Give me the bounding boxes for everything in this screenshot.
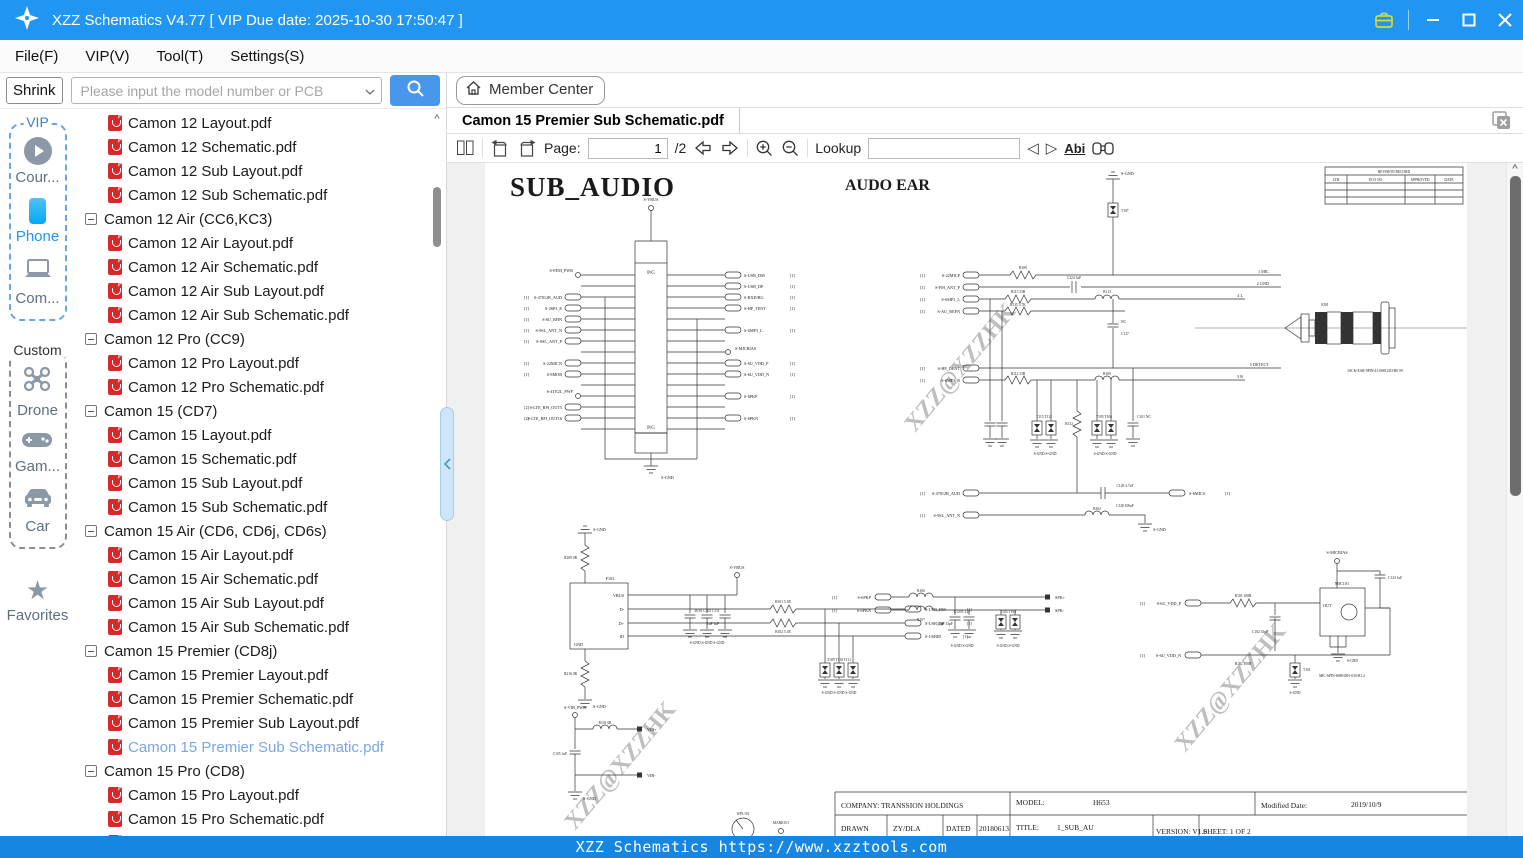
svg-text:1_SUB_AU: 1_SUB_AU bbox=[1057, 823, 1094, 832]
document-tab-bar: Camon 15 Premier Sub Schematic.pdf bbox=[447, 108, 1523, 134]
binoculars-icon[interactable] bbox=[1092, 141, 1114, 156]
svg-text:1uF 1uF: 1uF 1uF bbox=[707, 622, 719, 626]
svg-text:[1]: [1] bbox=[790, 328, 795, 333]
svg-text:S-6MICS: S-6MICS bbox=[1189, 491, 1206, 496]
svg-text:C129 4.7uF: C129 4.7uF bbox=[1117, 484, 1134, 488]
svg-text:S-9SL_ANT_N: S-9SL_ANT_N bbox=[535, 328, 562, 333]
category-sidebar: VIP Cour... Phone bbox=[0, 109, 75, 836]
search-icon bbox=[405, 78, 425, 103]
tree-item[interactable]: Camon 12 Schematic.pdf bbox=[75, 135, 446, 159]
section-title: AUDO EAR bbox=[845, 177, 930, 194]
find-next-icon[interactable] bbox=[1046, 139, 1058, 157]
svg-text:S-6MP3_R: S-6MP3_R bbox=[941, 378, 960, 383]
collapse-icon[interactable] bbox=[85, 525, 97, 537]
svg-text:[1]: [1] bbox=[920, 513, 925, 518]
svg-text:S-6U_RHN: S-6U_RHN bbox=[542, 317, 562, 322]
model-search-wrap bbox=[71, 77, 382, 104]
svg-text:ZY/DLA: ZY/DLA bbox=[893, 824, 921, 833]
pdf-file-icon bbox=[108, 667, 122, 683]
tree-item-label: Camon 15 Air Sub Schematic.pdf bbox=[128, 619, 349, 636]
collapse-icon[interactable] bbox=[85, 405, 97, 417]
tree-item[interactable]: Camon 15 Premier (CD8j) bbox=[75, 639, 446, 663]
svg-text:[1]: [1] bbox=[920, 309, 925, 314]
tree-item[interactable]: Camon 15 Air Sub Layout.pdf bbox=[75, 591, 446, 615]
pdf-file-icon bbox=[108, 139, 122, 155]
svg-text:[1]: [1] bbox=[790, 394, 795, 399]
tree-item[interactable]: Camon 15 Air Schematic.pdf bbox=[75, 567, 446, 591]
tree-item-label: Camon 15 Sub Schematic.pdf bbox=[128, 499, 327, 516]
svg-text:C105 1uF: C105 1uF bbox=[553, 752, 567, 756]
app-window: XZZ Schematics V4.77 [ VIP Due date: 202… bbox=[0, 0, 1523, 858]
tree-item-label: Camon 12 Air Sub Layout.pdf bbox=[128, 283, 324, 300]
svg-text:S-GND: S-GND bbox=[1290, 691, 1301, 695]
tree-item-label: Camon 12 Sub Schematic.pdf bbox=[128, 187, 327, 204]
svg-text:[2]: [2] bbox=[524, 416, 529, 421]
svg-text:R115 5.7K: R115 5.7K bbox=[1010, 303, 1026, 307]
svg-text:5 DETECT: 5 DETECT bbox=[1250, 362, 1270, 367]
pdf-file-icon bbox=[108, 115, 122, 131]
svg-text:R108: R108 bbox=[1019, 266, 1027, 270]
svg-text:C120 C121: C120 C121 bbox=[954, 610, 971, 614]
svg-text:S-6PKP: S-6PKP bbox=[744, 394, 758, 399]
phone-icon bbox=[29, 198, 46, 224]
status-bar: XZZ Schematics https://www.xzztools.com bbox=[0, 836, 1523, 858]
tree-item[interactable]: Camon 15 Premier Sub Schematic.pdf bbox=[75, 735, 446, 759]
menu-bar: File(F) VIP(V) Tool(T) Settings(S) bbox=[0, 40, 1523, 73]
next-page-icon[interactable] bbox=[720, 139, 740, 157]
pdf-file-icon bbox=[108, 187, 122, 203]
tree-item-label: Camon 15 Schematic.pdf bbox=[128, 451, 296, 468]
tree-item-label: Camon 15 Air Layout.pdf bbox=[128, 547, 293, 564]
svg-text:20180613: 20180613 bbox=[979, 824, 1009, 833]
svg-text:VIB-: VIB- bbox=[647, 773, 656, 778]
svg-text:C127: C127 bbox=[1121, 332, 1129, 336]
gamepad-icon bbox=[21, 431, 53, 454]
svg-text:COMPANY: TRANSSION HOLDINGS: COMPANY: TRANSSION HOLDINGS bbox=[841, 801, 963, 810]
page-total: /2 bbox=[675, 140, 687, 156]
tree-item-label: Camon 12 Pro Layout.pdf bbox=[128, 355, 299, 372]
svg-text:R112 33R: R112 33R bbox=[1011, 372, 1026, 376]
tree-item-label: Camon 15 Premier Layout.pdf bbox=[128, 667, 328, 684]
rotate-left-icon[interactable] bbox=[490, 139, 510, 158]
svg-text:S-GND: S-GND bbox=[593, 527, 606, 532]
tree-item[interactable]: Camon 12 Pro Layout.pdf bbox=[75, 351, 446, 375]
tree-item-label: Camon 12 Air Schematic.pdf bbox=[128, 259, 318, 276]
tree-item-label: Camon 12 Pro (CC9) bbox=[104, 331, 245, 348]
tree-item-label: Camon 15 Pro Schematic.pdf bbox=[128, 811, 324, 828]
svg-text:VIB+: VIB+ bbox=[647, 727, 657, 732]
scroll-up-icon[interactable] bbox=[1507, 163, 1523, 175]
pdf-file-icon bbox=[108, 451, 122, 467]
svg-text:[1]: [1] bbox=[1225, 491, 1230, 496]
pdf-file-icon bbox=[108, 259, 122, 275]
sidebar-item-drone[interactable]: Drone bbox=[17, 365, 58, 419]
revision-table: REVISION RECORD LTR ECO NO. APPROVED DAT… bbox=[1325, 167, 1463, 204]
svg-text:MODEL:: MODEL: bbox=[1016, 798, 1045, 807]
svg-text:[1]: [1] bbox=[524, 372, 529, 377]
svg-text:S-GND S-GND: S-GND S-GND bbox=[1034, 452, 1057, 456]
svg-text:NC: NC bbox=[1121, 320, 1127, 324]
svg-text:C124 1uF: C124 1uF bbox=[1067, 276, 1081, 280]
svg-text:R209 0R: R209 0R bbox=[564, 556, 577, 560]
sidebar-item-car[interactable]: Car bbox=[23, 487, 53, 535]
sidebar-item-favorites[interactable]: Favorites bbox=[7, 577, 69, 624]
custom-group-title: Custom bbox=[10, 342, 64, 358]
svg-text:LTR: LTR bbox=[1333, 178, 1340, 182]
svg-text:S-GND: S-GND bbox=[1153, 527, 1166, 532]
svg-text:S-VBUS: S-VBUS bbox=[730, 565, 746, 570]
svg-text:[2]: [2] bbox=[524, 405, 529, 410]
svg-text:TITLE:: TITLE: bbox=[1016, 823, 1039, 832]
svg-text:S-6U_VDD_N: S-6U_VDD_N bbox=[1156, 653, 1181, 658]
svg-text:R109: R109 bbox=[1103, 372, 1111, 376]
usb-circuit: S-GND R209 0R F102 VBUS D- D+ ID GND bbox=[564, 526, 972, 709]
lookup-label: Lookup bbox=[815, 140, 861, 156]
match-case-toggle[interactable]: Abi bbox=[1064, 141, 1085, 156]
tree-scrollbar-thumb[interactable] bbox=[433, 187, 441, 247]
svg-text:B113: B113 bbox=[1103, 290, 1111, 294]
tree-item[interactable]: Camon 12 Air (CC6,KC3) bbox=[75, 207, 446, 231]
menu-vip[interactable]: VIP(V) bbox=[85, 48, 129, 65]
sidebar-item-phone[interactable]: Phone bbox=[16, 198, 59, 245]
svg-text:S-GND S-GND S-GND: S-GND S-GND S-GND bbox=[822, 691, 857, 695]
pdf-file-icon bbox=[108, 547, 122, 563]
svg-text:R181 100R: R181 100R bbox=[1235, 594, 1252, 598]
pdf-scrollbar[interactable] bbox=[1506, 163, 1523, 836]
tree-item[interactable]: Camon 12 Layout.pdf bbox=[75, 111, 446, 135]
tree-item[interactable]: Camon 12 Air Schematic.pdf bbox=[75, 255, 446, 279]
svg-text:T103 T104: T103 T104 bbox=[1000, 610, 1016, 614]
svg-text:P/G: P/G bbox=[647, 271, 655, 276]
viewer-pane: Member Center Camon 15 Premier Sub Schem… bbox=[447, 73, 1523, 836]
file-tree: Camon 12 Layout.pdf Camon 12 Schematic.p… bbox=[75, 109, 446, 836]
svg-text:C101 NC: C101 NC bbox=[1137, 415, 1151, 419]
vip-group-title: VIP bbox=[23, 114, 52, 130]
svg-text:S-47812B_AUD: S-47812B_AUD bbox=[534, 295, 562, 300]
tree-item-label: Camon 12 Air (CC6,KC3) bbox=[104, 211, 272, 228]
svg-text:S-FEM_PWR: S-FEM_PWR bbox=[549, 268, 573, 273]
svg-text:[1]: [1] bbox=[920, 285, 925, 290]
svg-text:S-9SL_ANT_N: S-9SL_ANT_N bbox=[933, 513, 960, 518]
close-all-tabs-icon[interactable] bbox=[1491, 111, 1511, 136]
two-page-view-icon[interactable] bbox=[456, 139, 475, 157]
svg-text:[1]: [1] bbox=[832, 608, 837, 613]
svg-text:DATED: DATED bbox=[946, 824, 971, 833]
search-button[interactable] bbox=[390, 75, 440, 106]
speaker-circuit: S-6PKP S-6PKN [1] [1] R106 R107 bbox=[832, 589, 1066, 648]
svg-text:[1]: [1] bbox=[524, 361, 529, 366]
chevron-down-icon[interactable] bbox=[364, 85, 376, 103]
svg-text:R107: R107 bbox=[917, 618, 925, 622]
svg-text:S-26P3_E: S-26P3_E bbox=[545, 306, 562, 311]
search-bar: Shrink bbox=[0, 73, 446, 109]
svg-text:[1]: [1] bbox=[1140, 601, 1145, 606]
shrink-button[interactable]: Shrink bbox=[6, 77, 63, 104]
svg-text:R101 5.1R: R101 5.1R bbox=[775, 600, 791, 604]
tree-item[interactable]: Camon 12 Pro (CC9) bbox=[75, 327, 446, 351]
menu-file[interactable]: File(F) bbox=[15, 48, 58, 65]
svg-text:[1]: [1] bbox=[524, 328, 529, 333]
find-prev-icon[interactable] bbox=[1027, 139, 1039, 157]
svg-text:D101 C103 C111: D101 C103 C111 bbox=[694, 609, 719, 613]
svg-text:APPROVED: APPROVED bbox=[1411, 178, 1430, 182]
svg-text:[1]: [1] bbox=[967, 621, 972, 626]
svg-text:H653: H653 bbox=[1093, 798, 1110, 807]
tree-item-label: Camon 12 Sub Layout.pdf bbox=[128, 163, 302, 180]
svg-text:R102 5.1R: R102 5.1R bbox=[775, 630, 791, 634]
rotate-right-icon[interactable] bbox=[517, 139, 537, 158]
svg-text:R113 33R: R113 33R bbox=[1011, 290, 1026, 294]
svg-text:[1]: [1] bbox=[524, 306, 529, 311]
svg-text:R216 0R: R216 0R bbox=[564, 672, 577, 676]
model-search-input[interactable] bbox=[71, 77, 382, 104]
svg-text:[1]: [1] bbox=[790, 273, 795, 278]
tree-item[interactable]: Camon 15 Premier Sub Layout.pdf bbox=[75, 711, 446, 735]
laptop-icon bbox=[23, 257, 53, 286]
vip-group: VIP Cour... Phone bbox=[9, 123, 67, 321]
svg-text:S-8MOB: S-8MOB bbox=[547, 372, 563, 377]
zoom-out-icon[interactable] bbox=[781, 139, 800, 158]
tree-item[interactable]: Camon 15 Sub Schematic.pdf bbox=[75, 495, 446, 519]
lookup-input[interactable] bbox=[868, 138, 1020, 159]
titlebar-separator bbox=[1408, 10, 1409, 30]
tree-item[interactable]: Camon 15 Air Sub Schematic.pdf bbox=[75, 615, 446, 639]
svg-text:WPL101: WPL101 bbox=[737, 812, 750, 816]
pdf-scrollbar-thumb[interactable] bbox=[1510, 176, 1521, 496]
collapse-icon[interactable] bbox=[85, 213, 97, 225]
pdf-file-icon bbox=[108, 283, 122, 299]
svg-text:4 L: 4 L bbox=[1237, 293, 1243, 298]
pdf-file-icon bbox=[108, 427, 122, 443]
car-icon bbox=[23, 487, 53, 514]
tree-item[interactable]: Camon 12 Sub Schematic.pdf bbox=[75, 183, 446, 207]
menu-settings[interactable]: Settings(S) bbox=[230, 48, 304, 65]
svg-text:S-USB_DM: S-USB_DM bbox=[925, 607, 946, 612]
svg-text:S-4TE2L_PWF: S-4TE2L_PWF bbox=[547, 389, 574, 394]
svg-text:[1]: [1] bbox=[790, 372, 795, 377]
svg-text:S-HP_TENT: S-HP_TENT bbox=[744, 306, 766, 311]
pdf-view-area[interactable]: XZZ@XZZHK XZZ@XZZHK XZZ@XZZHK SUB_AUDIO … bbox=[447, 163, 1523, 836]
svg-text:S-47812B_AUD: S-47812B_AUD bbox=[932, 491, 960, 496]
svg-text:OUT: OUT bbox=[1323, 603, 1332, 608]
pdf-file-icon bbox=[108, 355, 122, 371]
svg-text:SPK-: SPK- bbox=[1055, 608, 1065, 613]
svg-text:S-6PKP: S-6PKP bbox=[858, 595, 872, 600]
pdf-file-icon bbox=[108, 235, 122, 251]
watermark: XZZ@XZZHK bbox=[560, 697, 682, 835]
svg-text:S-GND S-GND S-GND: S-GND S-GND S-GND bbox=[690, 641, 725, 645]
tree-item-label: Camon 12 Air Sub Schematic.pdf bbox=[128, 307, 349, 324]
tree-item[interactable]: Camon 15 Schematic.pdf bbox=[75, 447, 446, 471]
tree-item-label: Camon 15 Premier Sub Schematic.pdf bbox=[128, 739, 384, 756]
svg-text:C128 100nF: C128 100nF bbox=[1116, 504, 1134, 508]
license-briefcase-icon[interactable] bbox=[1366, 0, 1402, 40]
pdf-file-icon bbox=[108, 787, 122, 803]
tree-item-label: Camon 15 Premier Sub Layout.pdf bbox=[128, 715, 359, 732]
svg-text:[1]: [1] bbox=[790, 295, 795, 300]
sidebar-item-course[interactable]: Cour... bbox=[15, 137, 59, 186]
collapse-icon[interactable] bbox=[85, 765, 97, 777]
svg-text:S-GND: S-GND bbox=[1121, 171, 1134, 176]
svg-text:REVISION RECORD: REVISION RECORD bbox=[1378, 170, 1411, 174]
tree-item[interactable]: Camon 15 Pro (CD8) bbox=[75, 759, 446, 783]
panel-collapse-handle[interactable] bbox=[440, 407, 454, 521]
star-icon bbox=[26, 577, 49, 603]
page-label: Page: bbox=[544, 140, 581, 156]
tree-item[interactable]: Camon 12 Air Layout.pdf bbox=[75, 231, 446, 255]
tree-item-label: Camon 12 Pro Schematic.pdf bbox=[128, 379, 324, 396]
svg-text:2 GND: 2 GND bbox=[1257, 281, 1269, 286]
tree-item[interactable]: Camon 15 Sub Layout.pdf bbox=[75, 471, 446, 495]
tree-item-label: Camon 15 Pro Sub Layout.pdf bbox=[128, 835, 330, 837]
svg-text:S-GND: S-GND bbox=[593, 704, 606, 709]
tree-item[interactable]: Camon 15 Premier Schematic.pdf bbox=[75, 687, 446, 711]
pdf-file-icon bbox=[108, 379, 122, 395]
sidebar-item-computer[interactable]: Com... bbox=[15, 257, 59, 307]
tree-item-label: Camon 15 Premier Schematic.pdf bbox=[128, 691, 353, 708]
svg-text:MARK101: MARK101 bbox=[773, 821, 789, 825]
svg-text:ID: ID bbox=[620, 634, 624, 639]
tree-item-label: Camon 12 Layout.pdf bbox=[128, 115, 271, 132]
status-text: XZZ Schematics https://www.xzztools.com bbox=[576, 838, 948, 856]
svg-text:C102 33pF: C102 33pF bbox=[1252, 630, 1268, 634]
tree-item[interactable]: Camon 15 Air Layout.pdf bbox=[75, 543, 446, 567]
svg-text:D+: D+ bbox=[619, 621, 625, 626]
svg-text:JACK-EAR-9PIN-41-008123D-R0.99: JACK-EAR-9PIN-41-008123D-R0.99 bbox=[1347, 369, 1403, 373]
minimize-button[interactable] bbox=[1415, 0, 1451, 40]
svg-text:[1]: [1] bbox=[790, 361, 795, 366]
page-number-input[interactable] bbox=[588, 138, 668, 159]
toolbar-separator bbox=[747, 139, 748, 157]
svg-text:1 MIC: 1 MIC bbox=[1258, 269, 1269, 274]
pdf-file-icon bbox=[108, 715, 122, 731]
sidebar-item-game[interactable]: Gam... bbox=[15, 431, 60, 475]
scroll-up-icon[interactable] bbox=[431, 113, 443, 125]
tree-item-label: Camon 15 Air Schematic.pdf bbox=[128, 571, 318, 588]
menu-tool[interactable]: Tool(T) bbox=[157, 48, 204, 65]
tree-item-label: Camon 15 Sub Layout.pdf bbox=[128, 475, 302, 492]
svg-text:S-VIB_PWR: S-VIB_PWR bbox=[564, 705, 586, 710]
svg-text:[1]: [1] bbox=[920, 491, 925, 496]
jack-circuit: S-22MICP S-FM_ANT_P S-6MP3_L S-AU_REFN S… bbox=[920, 171, 1467, 532]
app-logo-icon bbox=[14, 5, 40, 36]
svg-text:[1]: [1] bbox=[1140, 653, 1145, 658]
document-tab[interactable]: Camon 15 Premier Sub Schematic.pdf bbox=[447, 108, 740, 133]
svg-text:S-LTE_RFI_OUT16: S-LTE_RFI_OUT16 bbox=[527, 416, 562, 421]
svg-text:S-VBUS: S-VBUS bbox=[644, 197, 660, 202]
svg-text:Modified Date:: Modified Date: bbox=[1261, 801, 1307, 810]
svg-text:S-6MP3_L: S-6MP3_L bbox=[941, 297, 960, 302]
tree-item-label: Camon 15 Premier (CD8j) bbox=[104, 643, 277, 660]
tree-item[interactable]: Camon 15 Layout.pdf bbox=[75, 423, 446, 447]
headphone-jack-symbol: EJ01 JACK-EAR-9PIN-41-008123D-R0.99 bbox=[1195, 302, 1467, 373]
pdf-file-icon bbox=[108, 739, 122, 755]
collapse-icon[interactable] bbox=[85, 333, 97, 345]
tree-item-label: Camon 15 Pro (CD8) bbox=[104, 763, 245, 780]
svg-text:[1]: [1] bbox=[524, 295, 529, 300]
tree-item[interactable]: Camon 15 (CD7) bbox=[75, 399, 446, 423]
tree-item[interactable]: Camon 12 Air Sub Schematic.pdf bbox=[75, 303, 446, 327]
svg-text:S-6PKN: S-6PKN bbox=[857, 608, 871, 613]
svg-text:D-: D- bbox=[620, 607, 625, 612]
toolbar-separator bbox=[482, 139, 483, 157]
svg-text:S-22MICN: S-22MICN bbox=[543, 361, 562, 366]
tree-item[interactable]: Camon 15 Pro Layout.pdf bbox=[75, 783, 446, 807]
svg-text:R106: R106 bbox=[917, 589, 925, 593]
tree-item[interactable]: Camon 12 Air Sub Layout.pdf bbox=[75, 279, 446, 303]
svg-text:S-GND S-GND: S-GND S-GND bbox=[951, 644, 974, 648]
svg-text:[1]: [1] bbox=[920, 273, 925, 278]
svg-text:T107: T107 bbox=[1121, 209, 1129, 213]
svg-text:S-22MICP: S-22MICP bbox=[942, 273, 961, 278]
tree-item[interactable]: Camon 15 Pro Sub Layout.pdf bbox=[75, 831, 446, 836]
svg-text:T109 T110 T111: T109 T110 T111 bbox=[827, 658, 851, 662]
left-panel: Shrink VIP bbox=[0, 73, 447, 836]
pdf-file-icon bbox=[108, 499, 122, 515]
svg-text:DRAWN: DRAWN bbox=[841, 824, 869, 833]
svg-text:[1]: [1] bbox=[920, 366, 925, 371]
tree-item-label: Camon 15 Layout.pdf bbox=[128, 427, 271, 444]
close-button[interactable] bbox=[1487, 0, 1523, 40]
svg-text:F102: F102 bbox=[606, 576, 615, 581]
svg-text:33pF 33pF: 33pF 33pF bbox=[937, 622, 953, 626]
svg-text:S-9SL_ANT_P: S-9SL_ANT_P bbox=[536, 339, 562, 344]
svg-text:C123 1uF: C123 1uF bbox=[1388, 576, 1402, 580]
tree-item-label: Camon 15 Air Sub Layout.pdf bbox=[128, 595, 324, 612]
maximize-button[interactable] bbox=[1451, 0, 1487, 40]
pdf-file-icon bbox=[108, 571, 122, 587]
svg-text:[1]: [1] bbox=[920, 378, 925, 383]
tree-item[interactable]: Camon 12 Pro Schematic.pdf bbox=[75, 375, 446, 399]
svg-text:R132: R132 bbox=[1065, 422, 1073, 426]
svg-text:S-6PKN: S-6PKN bbox=[744, 416, 758, 421]
tree-item[interactable]: Camon 15 Pro Schematic.pdf bbox=[75, 807, 446, 831]
tree-item-label: Camon 15 Pro Layout.pdf bbox=[128, 787, 299, 804]
svg-text:S-6U_VDD_N: S-6U_VDD_N bbox=[744, 372, 769, 377]
tree-item[interactable]: Camon 15 Air (CD6, CD6j, CD6s) bbox=[75, 519, 446, 543]
tree-item[interactable]: Camon 12 Sub Layout.pdf bbox=[75, 159, 446, 183]
svg-text:[1]: [1] bbox=[790, 284, 795, 289]
pdf-file-icon bbox=[108, 307, 122, 323]
svg-text:R103 0R: R103 0R bbox=[599, 721, 612, 725]
svg-text:ECO NO.: ECO NO. bbox=[1369, 178, 1383, 182]
prev-page-icon[interactable] bbox=[693, 139, 713, 157]
collapse-icon[interactable] bbox=[85, 645, 97, 657]
svg-text:S-GND: S-GND bbox=[583, 796, 596, 801]
svg-text:SPK+: SPK+ bbox=[1055, 595, 1066, 600]
svg-text:[1]: [1] bbox=[920, 297, 925, 302]
svg-text:S-HP_DENT: S-HP_DENT bbox=[938, 366, 961, 371]
zoom-in-icon[interactable] bbox=[755, 139, 774, 158]
svg-text:3 R: 3 R bbox=[1237, 374, 1243, 379]
member-center-button[interactable]: Member Center bbox=[456, 76, 605, 105]
svg-text:S-AU_REFN: S-AU_REFN bbox=[937, 309, 960, 314]
pdf-file-icon bbox=[108, 811, 122, 827]
svg-text:S-GND S-GND: S-GND S-GND bbox=[997, 644, 1020, 648]
tree-item-label: Camon 15 (CD7) bbox=[104, 403, 217, 420]
svg-text:[1]: [1] bbox=[524, 317, 529, 322]
svg-text:S-USB_DM: S-USB_DM bbox=[744, 273, 765, 278]
svg-text:VBUS: VBUS bbox=[613, 593, 625, 598]
svg-text:VERSION: V1.0: VERSION: V1.0 bbox=[1156, 827, 1207, 836]
svg-text:2019/10/9: 2019/10/9 bbox=[1351, 800, 1382, 809]
window-title: XZZ Schematics V4.77 [ VIP Due date: 202… bbox=[52, 12, 463, 29]
pdf-file-icon bbox=[108, 835, 122, 836]
svg-text:[1]: [1] bbox=[790, 416, 795, 421]
tree-item-label: Camon 12 Air Layout.pdf bbox=[128, 235, 293, 252]
svg-text:S-6U_VDD_P: S-6U_VDD_P bbox=[744, 361, 769, 366]
tree-item[interactable]: Camon 15 Premier Layout.pdf bbox=[75, 663, 446, 687]
